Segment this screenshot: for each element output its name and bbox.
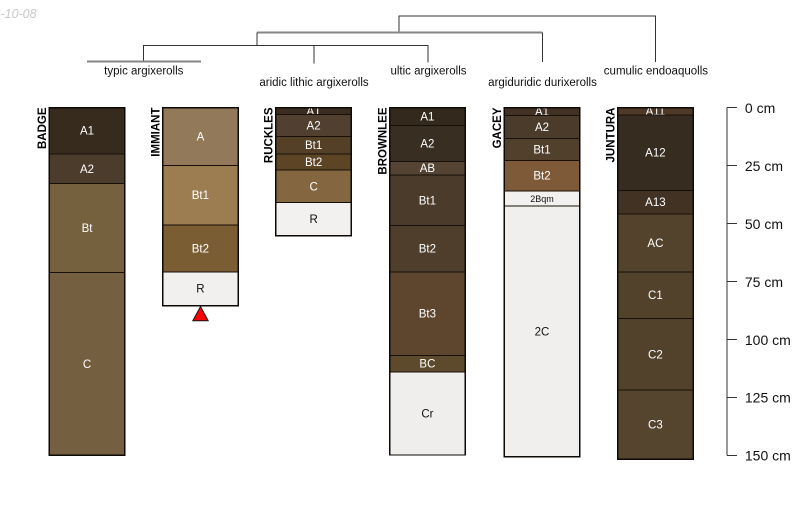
svg-text:BC: BC xyxy=(419,359,435,371)
svg-text:2C: 2C xyxy=(535,326,550,338)
svg-text:A2: A2 xyxy=(307,120,321,132)
svg-text:C: C xyxy=(309,181,317,193)
svg-text:Bt2: Bt2 xyxy=(192,243,209,255)
svg-text:Bt2: Bt2 xyxy=(533,171,550,183)
svg-text:0 cm: 0 cm xyxy=(745,100,775,116)
svg-text:JUNTURA: JUNTURA xyxy=(605,108,617,163)
svg-text:A1: A1 xyxy=(420,111,434,123)
svg-text:C2: C2 xyxy=(648,349,663,361)
svg-text:Bt2: Bt2 xyxy=(419,244,436,256)
svg-text:A2: A2 xyxy=(80,164,94,176)
svg-text:argiduridic durixerolls: argiduridic durixerolls xyxy=(488,77,597,89)
svg-text:C: C xyxy=(83,359,91,371)
svg-text:Bt1: Bt1 xyxy=(305,140,322,152)
svg-text:R: R xyxy=(309,214,317,226)
svg-text:75 cm: 75 cm xyxy=(745,274,783,290)
svg-text:Bt3: Bt3 xyxy=(419,309,436,321)
svg-text:BADGE: BADGE xyxy=(37,107,49,149)
svg-text:Bt1: Bt1 xyxy=(419,195,436,207)
svg-text:typic argixerolls: typic argixerolls xyxy=(104,65,183,77)
svg-text:aridic lithic argixerolls: aridic lithic argixerolls xyxy=(259,77,369,89)
svg-text:IMMIANT: IMMIANT xyxy=(151,108,163,157)
svg-text:150 cm: 150 cm xyxy=(745,448,791,464)
svg-text:Bt: Bt xyxy=(82,223,94,235)
svg-text:A2: A2 xyxy=(535,122,549,134)
svg-text:AC: AC xyxy=(647,238,663,250)
svg-text:BROWNLEE: BROWNLEE xyxy=(378,107,390,174)
svg-text:Bt1: Bt1 xyxy=(192,190,209,202)
svg-text:A: A xyxy=(197,132,205,144)
svg-text:6-10-08: 6-10-08 xyxy=(0,7,37,21)
svg-text:Bt1: Bt1 xyxy=(533,144,550,156)
svg-text:A2: A2 xyxy=(420,138,434,150)
svg-text:RUCKLES: RUCKLES xyxy=(264,107,276,163)
svg-text:100 cm: 100 cm xyxy=(745,332,791,348)
svg-text:125 cm: 125 cm xyxy=(745,390,791,406)
svg-text:Cr: Cr xyxy=(421,408,433,420)
svg-text:C1: C1 xyxy=(648,290,663,302)
svg-text:cumulic endoaquolls: cumulic endoaquolls xyxy=(604,65,708,77)
svg-text:C3: C3 xyxy=(648,420,663,432)
svg-text:A12: A12 xyxy=(645,148,665,160)
svg-text:50 cm: 50 cm xyxy=(745,216,783,232)
svg-text:A1: A1 xyxy=(80,126,94,138)
svg-text:AB: AB xyxy=(420,163,436,175)
svg-text:ultic argixerolls: ultic argixerolls xyxy=(390,65,466,77)
svg-text:25 cm: 25 cm xyxy=(745,158,783,174)
svg-text:2Bqm: 2Bqm xyxy=(530,194,554,204)
svg-text:Bt2: Bt2 xyxy=(305,157,322,169)
svg-text:A13: A13 xyxy=(645,197,665,209)
svg-text:GACEY: GACEY xyxy=(492,107,504,148)
svg-text:R: R xyxy=(196,284,204,296)
